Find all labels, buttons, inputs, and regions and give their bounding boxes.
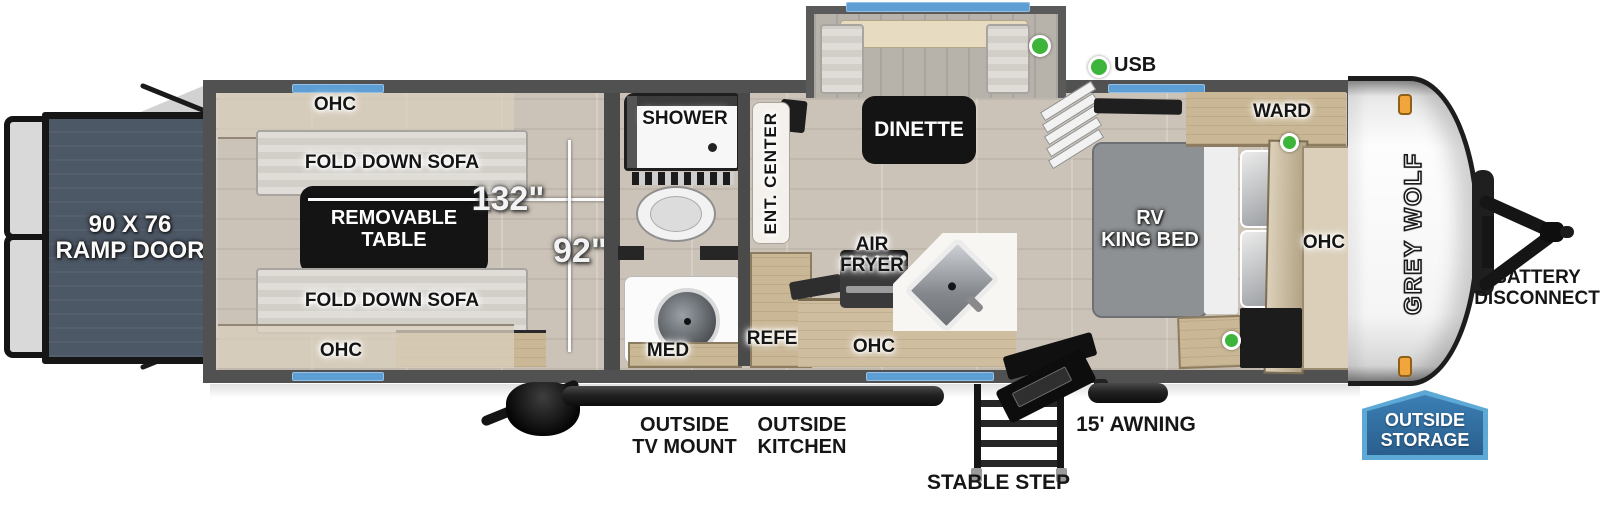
hitch-arm: [1486, 202, 1548, 230]
ladder-rung: [981, 440, 1057, 447]
floorplan-canvas: 90 X 76 RAMP DOOR DINETTE USB OHC FOLD D…: [0, 0, 1600, 515]
bath-kitchen-wall: [738, 93, 750, 366]
shower-grate: [632, 172, 734, 185]
slideout-indicator-dot: [1029, 35, 1051, 57]
ent-center: ENT. CENTER: [752, 102, 790, 244]
outside-storage-badge: OUTSIDE STORAGE: [1362, 390, 1488, 460]
dimension-width-label: 132": [448, 178, 568, 220]
ramp-door-label: 90 X 76 RAMP DOOR: [56, 212, 205, 264]
ohc-bedroom-label: OHC: [1296, 232, 1352, 254]
awning-label: 15' AWNING: [1056, 412, 1216, 438]
rv-king-bed-label: RV KING BED: [1101, 208, 1199, 251]
awning-tube: [1088, 383, 1168, 403]
dinette-label-box: DINETTE: [862, 96, 976, 164]
shower: SHOWER: [624, 93, 740, 171]
garage-top-window: [292, 84, 384, 93]
slideout-window: [846, 2, 1030, 12]
stable-step-label: STABLE STEP: [926, 470, 1071, 496]
bedroom-black-cabinet: [1240, 308, 1302, 368]
fold-down-sofa-bottom-label: FOLD DOWN SOFA: [305, 290, 479, 312]
ladder-rung: [981, 420, 1057, 427]
shower-wall-strip: [627, 96, 637, 168]
dinette-bench-right: [986, 24, 1030, 94]
air-fryer-label: AIR FRYER: [820, 234, 924, 278]
dinette-label: DINETTE: [874, 118, 964, 142]
ward-indicator-dot: [1280, 133, 1299, 152]
ramp-door: 90 X 76 RAMP DOOR: [42, 112, 218, 364]
battery-disconnect-label: BATTERY DISCONNECT: [1452, 266, 1600, 312]
bath-wall-stub: [618, 246, 644, 260]
toilet: [636, 186, 716, 242]
outside-kitchen-label: OUTSIDE KITCHEN: [732, 414, 872, 460]
shower-label: SHOWER: [637, 108, 733, 130]
marker-light: [1398, 94, 1412, 115]
ohc-bottom-label: OHC: [306, 340, 376, 362]
ladder-rung: [981, 460, 1057, 467]
bath-wall-stub: [700, 246, 740, 260]
kitchen-sink-drain: [946, 281, 957, 292]
bedroom-tv: [1094, 98, 1182, 115]
dinette-bench-left: [820, 24, 864, 94]
ward-label: WARD: [1236, 101, 1328, 123]
kitchen-bottom-window: [866, 372, 994, 381]
garage-bath-wall: [604, 93, 620, 370]
garage-bottom-window: [292, 372, 384, 381]
usb-label: USB: [1114, 54, 1156, 77]
shower-wall-strip: [627, 96, 737, 106]
rv-king-bed: RV KING BED: [1092, 142, 1208, 318]
toilet-bowl: [650, 196, 702, 232]
ohc-top-label: OHC: [300, 94, 370, 116]
ohc-bedroom-panel: [1302, 146, 1350, 370]
hitch-ball: [1560, 226, 1574, 238]
removable-table-label: REMOVABLE TABLE: [331, 208, 457, 251]
outside-storage-badge-inner: OUTSIDE STORAGE: [1367, 395, 1483, 455]
bed-sheet: [1204, 142, 1238, 314]
shower-drain: [708, 143, 717, 152]
outside-kitchen-rail: [562, 386, 944, 406]
outside-storage-label: OUTSIDE STORAGE: [1381, 411, 1470, 450]
ent-center-label: ENT. CENTER: [761, 112, 781, 234]
hitch-crossbar: [1482, 216, 1494, 268]
brand-logo-text: GREY WOLF: [1400, 152, 1428, 315]
brand-logo: GREY WOLF: [1392, 128, 1436, 338]
hitch: [1462, 168, 1574, 338]
usb-indicator-dot: [1088, 56, 1110, 78]
fold-down-sofa-top-label: FOLD DOWN SOFA: [305, 152, 479, 174]
med-label: MED: [636, 340, 700, 362]
ohc-kitchen-label: OHC: [838, 336, 910, 358]
med-sink-drain: [684, 318, 691, 325]
bed-indicator-dot: [1222, 331, 1241, 350]
ladder-rail: [974, 384, 981, 472]
marker-light: [1398, 356, 1412, 377]
